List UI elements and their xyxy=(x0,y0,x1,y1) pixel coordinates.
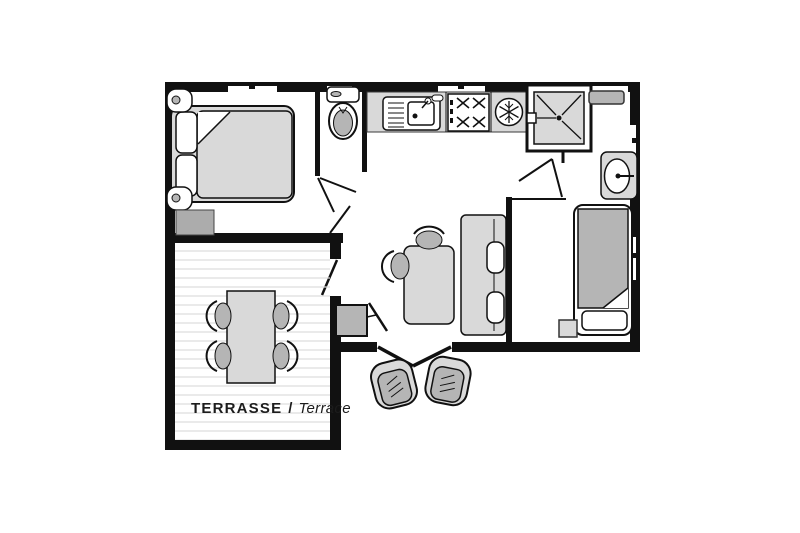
cushion xyxy=(487,292,504,323)
terrace-wall-bottom xyxy=(165,440,341,450)
kitchen xyxy=(367,92,530,132)
dining-chair xyxy=(382,251,409,282)
single-bed xyxy=(574,205,632,335)
door-leaf-shower-room xyxy=(519,159,552,181)
tv-icon xyxy=(369,303,387,331)
vent-shelf xyxy=(589,91,624,104)
fridge-icon xyxy=(496,99,523,126)
sofa-bench xyxy=(461,215,506,335)
wall-top xyxy=(352,82,438,92)
floor-plan: TERRASSE/Terrace xyxy=(0,0,800,533)
window xyxy=(590,82,628,86)
lamp-icon xyxy=(172,194,180,202)
dining-table xyxy=(404,246,454,324)
toilet xyxy=(327,87,359,139)
wall-top xyxy=(277,82,327,92)
floor-plan-canvas: TERRASSE/Terrace xyxy=(0,0,800,533)
terrace: TERRASSE/Terrace xyxy=(175,243,351,440)
dining-chair xyxy=(414,227,444,249)
storage-bench xyxy=(176,210,214,235)
bedroom2-wall-left xyxy=(506,197,512,342)
nightstand-lamp xyxy=(167,187,192,210)
cushion xyxy=(487,242,504,273)
terrace-wall-right xyxy=(330,243,341,259)
window-mullion xyxy=(632,253,640,258)
tv-stand xyxy=(336,305,367,336)
hob-icon xyxy=(448,94,489,131)
door-leaf-bedroom2 xyxy=(552,159,562,197)
window xyxy=(636,237,640,280)
pillow xyxy=(176,112,197,153)
wc-wall-right xyxy=(362,92,367,172)
flush-button xyxy=(331,92,341,97)
window xyxy=(327,82,352,86)
shower-room xyxy=(527,85,637,199)
outdoor-armchair xyxy=(423,354,473,407)
bedroom-master xyxy=(167,89,294,235)
nightstand-lamp xyxy=(167,89,192,112)
soap-dish xyxy=(432,95,443,101)
sink-icon xyxy=(383,95,443,130)
double-bed xyxy=(171,106,294,202)
washbasin-icon xyxy=(601,152,637,199)
outdoor-table xyxy=(227,291,275,383)
wc-wall-left xyxy=(315,92,320,176)
window-mullion xyxy=(249,82,255,89)
door-leaf-wc xyxy=(320,178,356,192)
bedroom-single xyxy=(559,205,632,337)
wall-right xyxy=(630,82,640,125)
window-mullion xyxy=(632,138,640,143)
bedside-table xyxy=(559,320,577,337)
living-dining xyxy=(336,215,506,336)
pillow xyxy=(582,311,627,330)
shower-handle xyxy=(527,113,536,123)
shower-icon xyxy=(527,85,591,151)
window-mullion xyxy=(458,82,464,89)
terrace-label: TERRASSE/Terrace xyxy=(191,400,351,417)
lamp-icon xyxy=(172,96,180,104)
wall-bottom xyxy=(452,342,640,352)
